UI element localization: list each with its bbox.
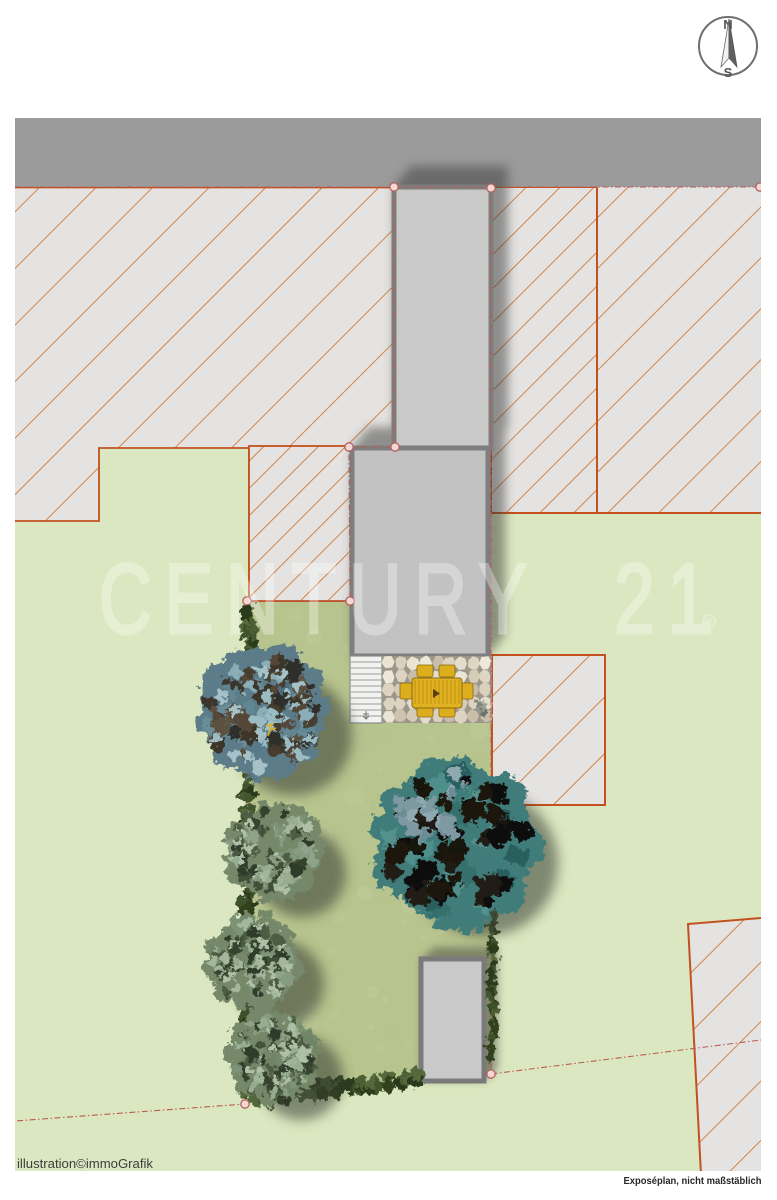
svg-text:illustration©immoGrafik: illustration©immoGrafik [17, 1157, 154, 1171]
svg-text:S: S [724, 65, 733, 80]
svg-text:Exposéplan, nicht maßstäblich: Exposéplan, nicht maßstäblich [624, 1175, 762, 1187]
svg-text:R: R [706, 617, 713, 627]
svg-text:21.: 21. [614, 544, 729, 654]
svg-text:CENTURY: CENTURY [99, 544, 540, 654]
